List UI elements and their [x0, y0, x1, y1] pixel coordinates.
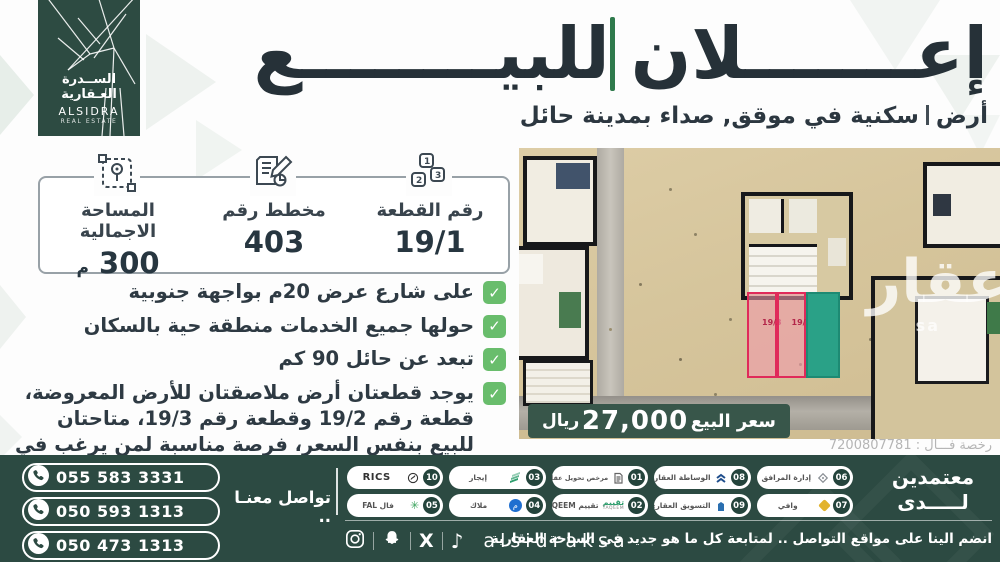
map-room	[789, 199, 817, 233]
map-building	[923, 162, 1000, 248]
svg-text:1: 1	[424, 157, 430, 167]
document-icon	[612, 472, 624, 484]
main-title: إعـــــــلان للبيــــــــع	[262, 4, 988, 104]
phone-number: 050 473 1313	[56, 536, 184, 555]
taqeem-logo-icon: تقييمTAQEEM	[603, 499, 625, 512]
logo-name-ar-2: العـقارية	[38, 88, 140, 103]
snapchat-icon[interactable]	[382, 529, 402, 553]
badge-label: إدارة المرافق	[760, 473, 813, 482]
map-room	[749, 199, 784, 233]
badge-label: مرخص تحويل عقارات سكني	[552, 474, 608, 482]
logo-text: الســدرة العـقارية ALSIDRA REAL ESTATE	[38, 73, 140, 126]
badge-label: فال FAL	[350, 501, 406, 510]
info-value: 300 م	[40, 246, 196, 280]
plot-19-1-offered	[806, 292, 840, 378]
map-building	[519, 246, 589, 360]
phone-list: 055 583 3331 050 593 1313 050 473 1313	[22, 463, 220, 562]
logo-name-ar-1: الســدرة	[38, 73, 140, 88]
accredited-by-label: معتمدين لـــــدى	[874, 465, 992, 515]
area-unit: م	[76, 258, 88, 278]
plot-19-2: 19/2	[777, 292, 806, 378]
badge-label: الوساطة العقارية	[654, 473, 710, 482]
badge-number: 01	[628, 469, 645, 486]
badge-number: 03	[526, 469, 543, 486]
subtitle-divider	[926, 105, 929, 125]
map-terrain-specks	[669, 188, 672, 191]
map-building	[523, 360, 593, 406]
badge-number: 06	[833, 469, 850, 486]
map-trees	[559, 292, 581, 328]
title-word-announcement: إعـــــــلان	[631, 15, 988, 93]
instagram-icon[interactable]	[345, 529, 365, 553]
title-announcement-group: إعـــــــلان	[610, 15, 988, 93]
badge-label: تقييم TAQEEM	[552, 501, 599, 510]
list-item: حولها جميع الخدمات منطقة حية بالسكان	[8, 313, 506, 339]
title-word-for-sale: للبيــــــــع	[254, 15, 610, 93]
x-twitter-icon[interactable]	[419, 532, 434, 551]
decor-triangle	[146, 34, 216, 130]
alsidra-logo: الســدرة العـقارية ALSIDRA REAL ESTATE	[38, 0, 140, 136]
badge-label: التسويق العقاري	[654, 501, 710, 510]
map-roof	[933, 194, 951, 216]
phone-number: 055 583 3331	[56, 468, 184, 487]
accreditation-badge-marketing: 09 التسويق العقاري	[654, 494, 750, 517]
phone-icon	[28, 465, 49, 490]
phone-icon	[28, 533, 49, 558]
feature-text: تبعد عن حائل 90 كم	[279, 346, 474, 372]
phone-number-pill[interactable]: 050 593 1313	[22, 497, 220, 526]
map-building	[523, 156, 597, 246]
svg-text:3: 3	[435, 171, 441, 181]
contact-us-label: تواصل معنـا ..	[225, 488, 331, 526]
satellite-map: 19/3 19/2 عقار sa	[519, 148, 1000, 439]
social-separator	[442, 532, 443, 550]
check-icon	[483, 348, 506, 371]
accreditation-row: 07 وافي 09 التسويق العقاري 02 تقييمTAQEE…	[347, 494, 853, 517]
real-estate-flyer: الســدرة العـقارية ALSIDRA REAL ESTATE إ…	[0, 0, 1000, 562]
accreditation-badge-ejar: 03 إيجار	[449, 466, 545, 489]
badge-label: وافي	[760, 501, 816, 510]
title-divider-bar	[610, 17, 615, 91]
aqar-watermark: عقار	[867, 252, 1000, 312]
accredited-line2: لـــــدى	[874, 490, 992, 515]
badge-number: 04	[526, 497, 543, 514]
decor-triangle	[196, 120, 242, 180]
mullak-logo-icon: م	[509, 499, 522, 512]
price-currency: ريال	[542, 411, 579, 431]
map-area-icon	[94, 150, 140, 196]
list-item: تبعد عن حائل 90 كم	[8, 346, 506, 372]
accreditation-badge-wafi: 07 وافي	[757, 494, 853, 517]
accreditation-grid: 06 إدارة المرافق 08 الوساطة العقارية 01 …	[347, 466, 853, 522]
footer-horizontal-divider	[345, 520, 992, 521]
social-separator	[373, 532, 374, 550]
price-bar: سعر البيع 27,000 ريال	[528, 404, 790, 438]
badge-label: ملاك	[452, 501, 504, 510]
area-value: 300	[99, 246, 160, 280]
price-label: سعر البيع	[691, 411, 776, 432]
info-value: 19/1	[352, 225, 508, 259]
accreditation-badge-brokerage: 08 الوساطة العقارية	[654, 466, 750, 489]
accredited-line1: معتمدين	[874, 465, 992, 490]
phone-number-pill[interactable]: 050 473 1313	[22, 531, 220, 560]
badge-number: 07	[833, 497, 850, 514]
rics-lion-icon	[407, 472, 419, 484]
aqar-watermark-sub: sa	[916, 316, 940, 335]
accreditation-row: 06 إدارة المرافق 08 الوساطة العقارية 01 …	[347, 466, 853, 489]
fal-logo-icon	[410, 499, 419, 512]
check-icon	[483, 315, 506, 338]
badge-number: 02	[628, 497, 645, 514]
ejar-logo-icon	[508, 472, 522, 484]
accreditation-badge-taqeem: 02 تقييمTAQEEM تقييم TAQEEM	[552, 494, 648, 517]
map-room	[828, 238, 846, 266]
building-icon	[715, 500, 727, 512]
phone-icon	[28, 499, 49, 524]
fal-license-number: رخصة فـــال : 7200807781	[742, 438, 992, 453]
price-value: 27,000	[582, 406, 688, 436]
footer-note: انضم الينا على مواقع التواصل .. لمتابعة …	[491, 531, 992, 547]
list-item: على شارع عرض 20م بواجهة جنوبية	[8, 279, 506, 305]
badge-number: 05	[423, 497, 440, 514]
chevrons-icon	[715, 472, 727, 484]
info-label: مخطط رقم	[196, 200, 352, 221]
phone-number: 050 593 1313	[56, 502, 184, 521]
plot-19-3: 19/3	[747, 292, 777, 378]
subtitle-prefix: أرض	[936, 103, 988, 129]
badge-label: RICS	[350, 472, 403, 483]
map-building	[741, 192, 853, 300]
accreditation-badge-license: 01 مرخص تحويل عقارات سكني	[552, 466, 648, 489]
info-label: رقم القطعة	[352, 200, 508, 221]
info-value: 403	[196, 225, 352, 259]
badge-number: 10	[423, 469, 440, 486]
check-icon	[483, 382, 506, 405]
footer: 055 583 3331 050 593 1313 050 473 1313 ت…	[0, 455, 1000, 562]
numbered-squares-icon: 123	[406, 150, 452, 196]
map-room	[749, 244, 817, 293]
compass-icon	[817, 472, 829, 484]
accreditation-badge-mullak: 04 م ملاك	[449, 494, 545, 517]
map-road	[597, 148, 624, 404]
subtitle: أرضسكنية في موقق, صداء بمدينة حائل	[520, 103, 988, 129]
badge-number: 08	[731, 469, 748, 486]
feature-text: حولها جميع الخدمات منطقة حية بالسكان	[84, 313, 474, 339]
tiktok-icon[interactable]	[451, 531, 464, 551]
feature-text: على شارع عرض 20م بواجهة جنوبية	[129, 279, 474, 305]
info-label: المساحة الاجمالية	[40, 200, 196, 242]
social-separator	[410, 532, 411, 550]
subtitle-location: سكنية في موقق, صداء بمدينة حائل	[520, 103, 919, 129]
wafi-logo-icon	[820, 501, 829, 510]
badge-number: 09	[731, 497, 748, 514]
decor-triangle	[0, 55, 34, 135]
badge-label: إيجار	[452, 473, 503, 482]
svg-text:2: 2	[416, 176, 422, 186]
footer-vertical-divider	[336, 468, 338, 515]
plan-document-icon	[250, 150, 296, 196]
accreditation-badge-facility-mgmt: 06 إدارة المرافق	[757, 466, 853, 489]
map-roof	[556, 163, 590, 189]
accreditation-badge-fal: 05 فال FAL	[347, 494, 443, 517]
phone-number-pill[interactable]: 055 583 3331	[22, 463, 220, 492]
logo-name-en-2: REAL ESTATE	[38, 119, 140, 126]
map-room	[519, 254, 543, 284]
check-icon	[483, 281, 506, 304]
accreditation-badge-rics: 10 RICS	[347, 466, 443, 489]
